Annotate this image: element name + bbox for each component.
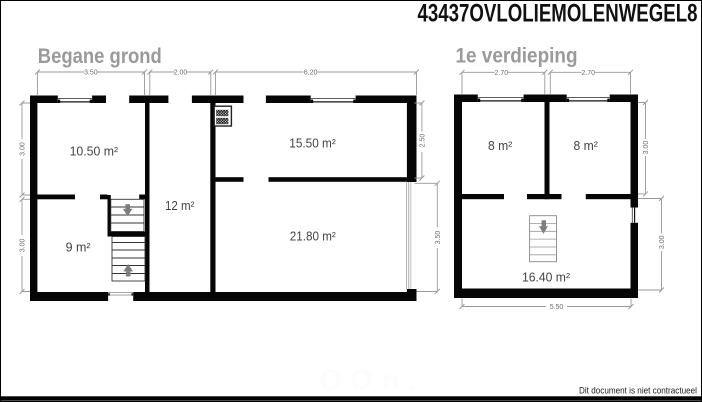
svg-text:3.00: 3.00 <box>20 142 27 156</box>
svg-text:21.80 m²: 21.80 m² <box>290 228 337 243</box>
svg-text:2.70: 2.70 <box>494 70 508 77</box>
svg-text:3.00: 3.00 <box>643 141 650 155</box>
svg-text:9 m²: 9 m² <box>66 240 92 255</box>
svg-text:Begane grond: Begane grond <box>38 44 162 68</box>
svg-text:3.00: 3.00 <box>20 238 27 252</box>
svg-text:12 m²: 12 m² <box>165 198 195 213</box>
svg-text:15.50 m²: 15.50 m² <box>289 135 336 150</box>
svg-text:8 m²: 8 m² <box>574 138 599 153</box>
svg-text:Dit document is niet contractu: Dit document is niet contractueel <box>579 386 697 397</box>
svg-text:16.40 m²: 16.40 m² <box>522 270 571 285</box>
svg-text:3.50: 3.50 <box>84 70 98 77</box>
svg-text:2.00: 2.00 <box>174 70 188 77</box>
svg-text:8 m²: 8 m² <box>488 138 513 153</box>
svg-text:6.20: 6.20 <box>304 70 318 77</box>
svg-text:1e verdieping: 1e verdieping <box>456 44 578 68</box>
svg-text:3.00: 3.00 <box>659 235 666 249</box>
svg-text:10.50 m²: 10.50 m² <box>70 143 119 158</box>
svg-text:2.70: 2.70 <box>581 70 595 77</box>
svg-text:3.50: 3.50 <box>435 231 442 245</box>
svg-text:2.50: 2.50 <box>419 134 426 148</box>
svg-text:5.50: 5.50 <box>550 304 564 311</box>
svg-text:43437OVLOLIEMOLENWEGEL8: 43437OVLOLIEMOLENWEGEL8 <box>418 0 698 27</box>
